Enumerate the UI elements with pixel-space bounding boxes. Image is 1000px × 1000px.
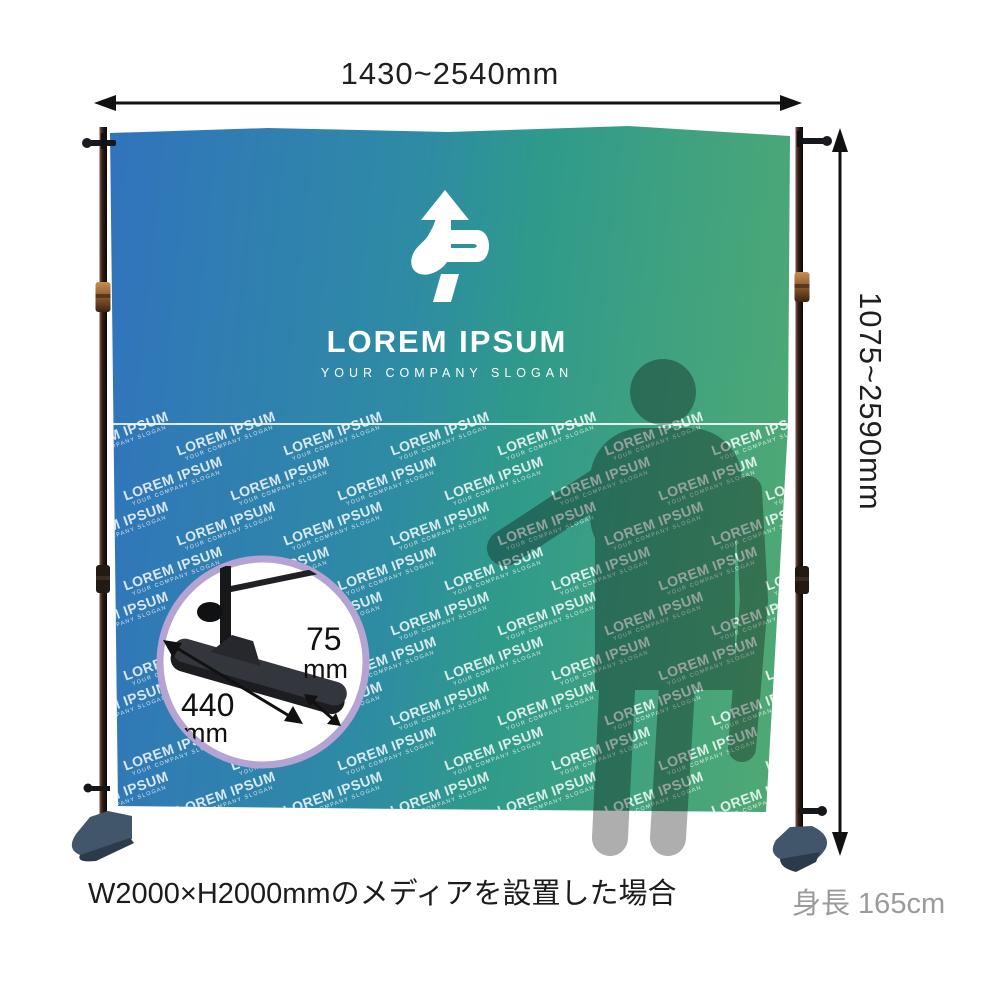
pole-stub xyxy=(220,566,231,646)
base-width-value: 75 xyxy=(306,621,342,657)
product-diagram: LOREM IPSUMYOUR COMPANY SLOGANLOREM IPSU… xyxy=(0,0,1000,1000)
base-length-unit: mm xyxy=(183,718,228,748)
height-dimension-arrow xyxy=(828,126,852,858)
base-detail-circle: 75 mm 440 mm xyxy=(148,548,378,778)
base-width-unit: mm xyxy=(303,654,348,684)
left-pole xyxy=(82,127,116,845)
height-dimension-label: 1075~2590mm xyxy=(852,292,888,511)
width-dimension-arrow xyxy=(90,92,806,114)
right-pole xyxy=(795,127,833,849)
knob xyxy=(197,602,223,622)
person-height-caption: 身長 165cm xyxy=(792,880,945,922)
media-size-caption: W2000×H2000mmのメディアを設置した場合 xyxy=(88,870,677,912)
width-dimension-label: 1430~2540mm xyxy=(200,56,700,92)
